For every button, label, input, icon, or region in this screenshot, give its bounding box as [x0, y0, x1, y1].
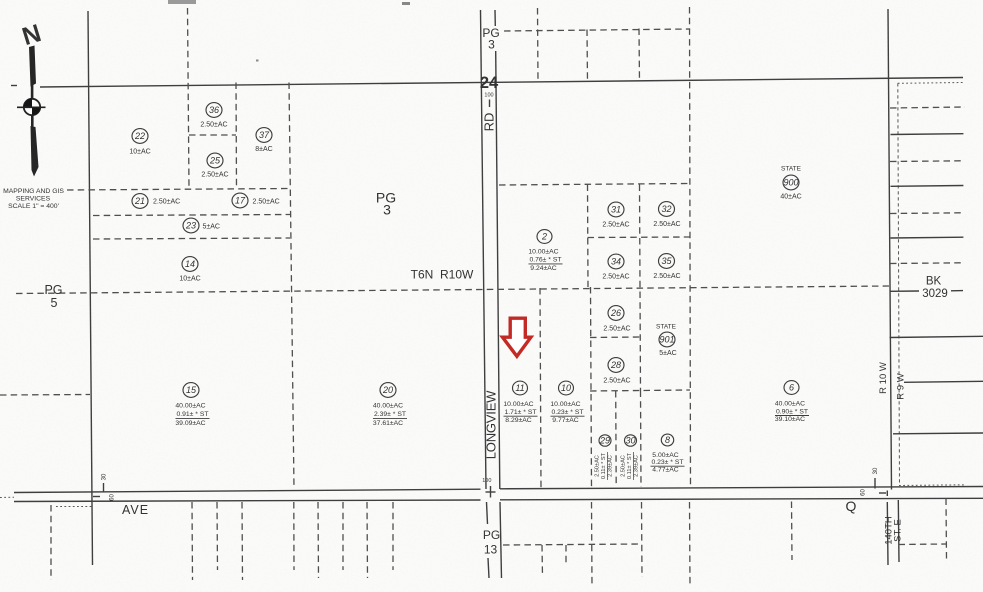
svg-text:5.00±AC: 5.00±AC	[652, 452, 678, 459]
svg-text:31: 31	[611, 205, 621, 215]
svg-text:3: 3	[383, 202, 391, 218]
svg-text:RD: RD	[482, 113, 497, 132]
svg-text:8: 8	[665, 435, 670, 445]
svg-text:37: 37	[259, 130, 270, 140]
svg-text:2.50±AC: 2.50±AC	[253, 199, 280, 206]
svg-text:26: 26	[610, 308, 621, 318]
svg-text:8±AC: 8±AC	[255, 146, 272, 153]
svg-text:20: 20	[382, 385, 393, 395]
svg-text:3029: 3029	[922, 288, 948, 300]
svg-text:0.76± * ST: 0.76± * ST	[529, 257, 561, 264]
svg-text:PG: PG	[483, 528, 500, 542]
svg-text:10±AC: 10±AC	[179, 276, 200, 283]
svg-text:35: 35	[661, 256, 672, 266]
svg-text:5±AC: 5±AC	[659, 350, 676, 357]
svg-text:2.50±AC: 2.50±AC	[603, 326, 630, 333]
svg-text:28: 28	[610, 360, 621, 370]
svg-text:0.11± * ST: 0.11± * ST	[627, 452, 633, 479]
svg-text:0.90± * ST: 0.90± * ST	[776, 408, 808, 415]
svg-text:2.50±AC: 2.50±AC	[620, 455, 626, 477]
svg-text:9.77±AC: 9.77±AC	[552, 417, 578, 424]
svg-text:Q: Q	[846, 498, 857, 514]
svg-text:2.50±AC: 2.50±AC	[602, 222, 629, 229]
svg-text:9.24±AC: 9.24±AC	[530, 265, 556, 272]
svg-text:SCALE 1" = 400': SCALE 1" = 400'	[8, 203, 59, 210]
svg-text:14: 14	[185, 259, 195, 269]
svg-text:0.11± * ST: 0.11± * ST	[601, 452, 607, 479]
svg-text:2.50±AC: 2.50±AC	[603, 378, 630, 385]
svg-text:34: 34	[611, 257, 621, 267]
svg-text:AVE: AVE	[122, 503, 149, 517]
svg-text:36: 36	[209, 105, 219, 115]
svg-text:40.00±AC: 40.00±AC	[775, 401, 805, 408]
svg-text:10±AC: 10±AC	[129, 149, 150, 156]
svg-text:R 10 W: R 10 W	[878, 362, 889, 394]
svg-text:39.09±AC: 39.09±AC	[175, 420, 205, 427]
svg-text:17: 17	[235, 196, 246, 206]
svg-text:2.50±AC: 2.50±AC	[653, 221, 680, 228]
svg-text:8.29±AC: 8.29±AC	[505, 417, 531, 424]
svg-text:STATE: STATE	[781, 166, 802, 173]
svg-text:10.00±AC: 10.00±AC	[550, 401, 580, 408]
svg-text:2.39± * ST: 2.39± * ST	[374, 411, 406, 418]
svg-text:30: 30	[873, 467, 879, 474]
svg-text:T6N R10W: T6N R10W	[411, 268, 474, 282]
svg-text:901: 901	[659, 335, 674, 345]
svg-text:30: 30	[102, 473, 108, 480]
svg-text:R 9 W: R 9 W	[896, 373, 907, 399]
svg-text:2.39±AC: 2.39±AC	[607, 455, 613, 477]
svg-text:13: 13	[484, 543, 498, 557]
svg-text:900: 900	[783, 178, 798, 188]
svg-text:40±AC: 40±AC	[780, 194, 801, 201]
svg-text:2.50±AC: 2.50±AC	[594, 455, 600, 477]
svg-text:PG: PG	[44, 283, 62, 297]
svg-text:11: 11	[515, 383, 524, 393]
svg-text:2.50±AC: 2.50±AC	[200, 122, 227, 129]
svg-text:4.77±AC: 4.77±AC	[652, 467, 678, 474]
svg-text:1.71± * ST: 1.71± * ST	[504, 409, 536, 416]
svg-text:40.00±AC: 40.00±AC	[175, 403, 205, 410]
svg-text:100: 100	[482, 478, 491, 484]
svg-text:60: 60	[861, 489, 867, 496]
svg-text:39.10±AC: 39.10±AC	[775, 416, 805, 423]
svg-text:15: 15	[186, 385, 197, 395]
svg-text:37.61±AC: 37.61±AC	[373, 420, 403, 427]
svg-text:29: 29	[599, 436, 610, 446]
svg-text:10: 10	[561, 383, 571, 393]
svg-text:10.00±AC: 10.00±AC	[503, 401, 533, 408]
svg-text:2.50±AC: 2.50±AC	[602, 274, 629, 281]
svg-text:23: 23	[185, 221, 196, 231]
svg-text:LONGVIEW: LONGVIEW	[484, 390, 499, 459]
svg-text:32: 32	[661, 204, 671, 214]
svg-text:21: 21	[134, 196, 145, 206]
svg-text:24: 24	[480, 74, 499, 92]
svg-text:40.00±AC: 40.00±AC	[373, 403, 403, 410]
svg-text:3: 3	[488, 38, 495, 52]
svg-text:MAPPING AND GIS: MAPPING AND GIS	[3, 188, 64, 195]
svg-text:BK: BK	[926, 276, 942, 288]
svg-text:STATE: STATE	[656, 324, 677, 331]
svg-text:60: 60	[110, 494, 116, 501]
svg-text:2.39±AC: 2.39±AC	[633, 455, 639, 477]
svg-text:ST. E: ST. E	[893, 519, 904, 542]
svg-text:0.23± * ST: 0.23± * ST	[651, 459, 683, 466]
svg-text:0.91± * ST: 0.91± * ST	[176, 411, 208, 418]
svg-text:22: 22	[134, 131, 145, 141]
svg-text:30: 30	[625, 436, 635, 446]
svg-text:5: 5	[51, 296, 58, 310]
svg-text:2.50±AC: 2.50±AC	[653, 273, 680, 280]
svg-text:SERVICES: SERVICES	[16, 196, 51, 203]
svg-text:0.23± * ST: 0.23± * ST	[551, 409, 583, 416]
svg-text:2.50±AC: 2.50±AC	[201, 172, 228, 179]
svg-text:100: 100	[484, 93, 493, 99]
svg-text:5±AC: 5±AC	[203, 224, 220, 231]
svg-text:6: 6	[789, 383, 794, 393]
svg-text:10.00±AC: 10.00±AC	[528, 249, 558, 256]
svg-text:25: 25	[209, 156, 221, 166]
svg-text:2.50±AC: 2.50±AC	[153, 199, 180, 206]
svg-text:2: 2	[541, 232, 547, 242]
